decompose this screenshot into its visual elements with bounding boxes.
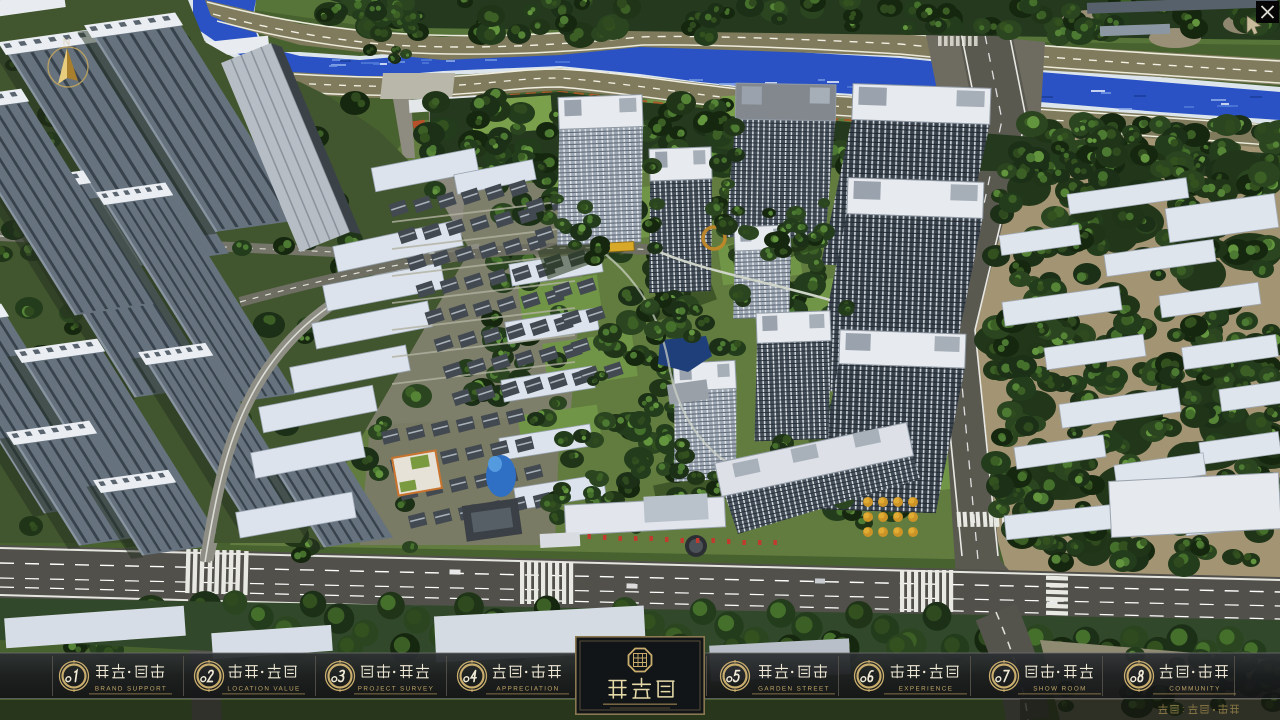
svg-text:APPRECIATION: APPRECIATION [496, 685, 559, 692]
svg-text:EXPERIENCE: EXPERIENCE [899, 685, 954, 692]
svg-text:GARDEN STREET: GARDEN STREET [758, 685, 830, 692]
svg-text:LOCATION VALUE: LOCATION VALUE [227, 685, 300, 692]
svg-text::: : [1182, 704, 1185, 714]
svg-text:BRAND SUPPORT: BRAND SUPPORT [95, 685, 167, 692]
svg-text:COMMUNITY: COMMUNITY [1169, 685, 1220, 692]
svg-text:PROJECT SURVEY: PROJECT SURVEY [358, 685, 434, 692]
svg-text:SHOW ROOM: SHOW ROOM [1033, 685, 1087, 692]
